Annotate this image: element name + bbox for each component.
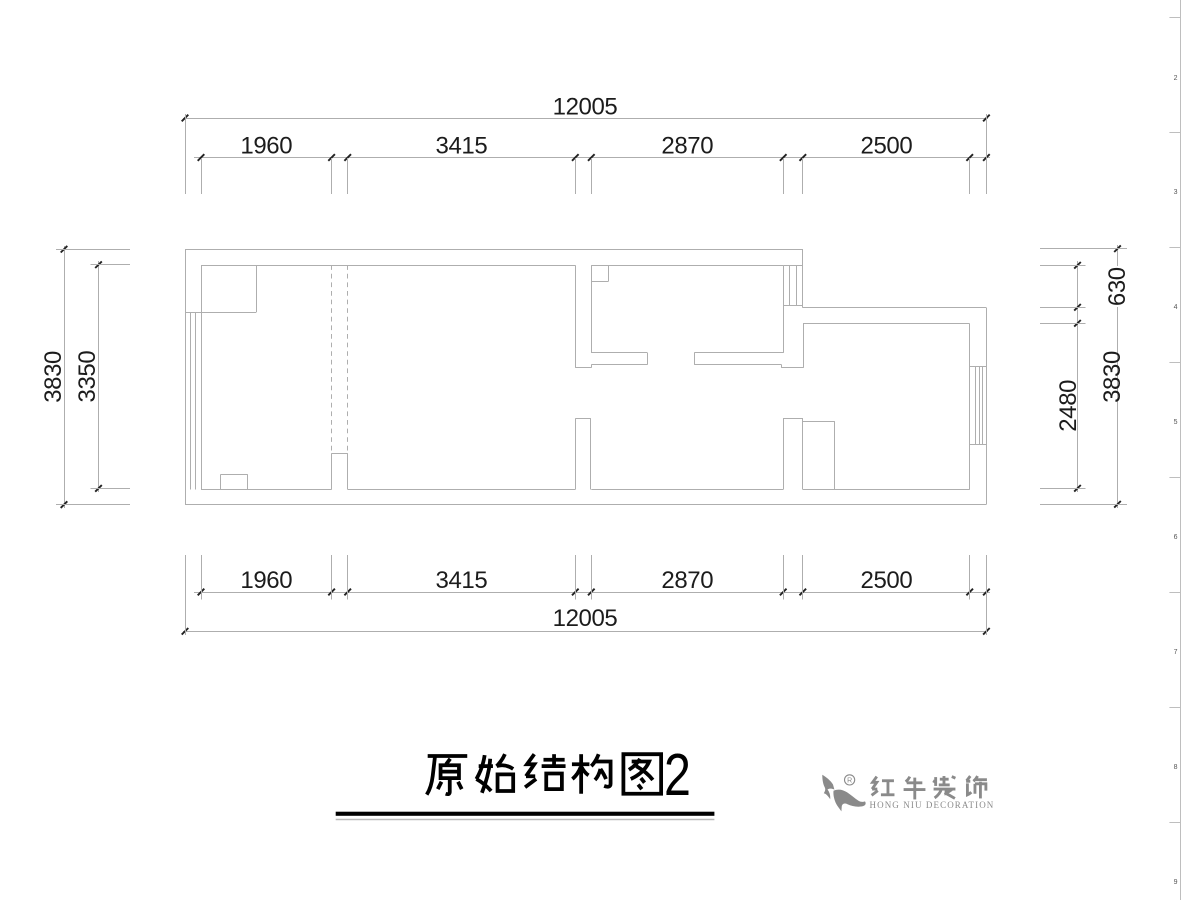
svg-text:2870: 2870	[661, 132, 713, 159]
svg-text:2: 2	[664, 743, 691, 809]
svg-text:3830: 3830	[1099, 351, 1126, 403]
svg-text:2480: 2480	[1055, 380, 1082, 432]
svg-text:1960: 1960	[240, 567, 292, 594]
svg-text:3415: 3415	[436, 132, 488, 159]
svg-text:7: 7	[1174, 649, 1178, 656]
svg-text:12005: 12005	[553, 605, 618, 632]
svg-text:4: 4	[1174, 304, 1178, 311]
svg-text:HONG NIU DECORATION: HONG NIU DECORATION	[870, 800, 995, 810]
svg-text:9: 9	[1174, 879, 1178, 886]
svg-text:630: 630	[1104, 267, 1131, 306]
svg-text:3830: 3830	[40, 351, 67, 403]
svg-text:2: 2	[1174, 75, 1178, 82]
svg-text:2870: 2870	[661, 567, 713, 594]
svg-text:5: 5	[1174, 419, 1178, 426]
svg-text:8: 8	[1174, 764, 1178, 771]
svg-text:1960: 1960	[240, 132, 292, 159]
svg-text:R: R	[847, 777, 852, 784]
svg-text:3: 3	[1174, 189, 1178, 196]
svg-text:2500: 2500	[861, 132, 913, 159]
svg-text:6: 6	[1174, 534, 1178, 541]
svg-text:3415: 3415	[436, 567, 488, 594]
svg-text:12005: 12005	[553, 94, 618, 121]
svg-text:3350: 3350	[74, 351, 101, 403]
svg-text:2500: 2500	[861, 567, 913, 594]
